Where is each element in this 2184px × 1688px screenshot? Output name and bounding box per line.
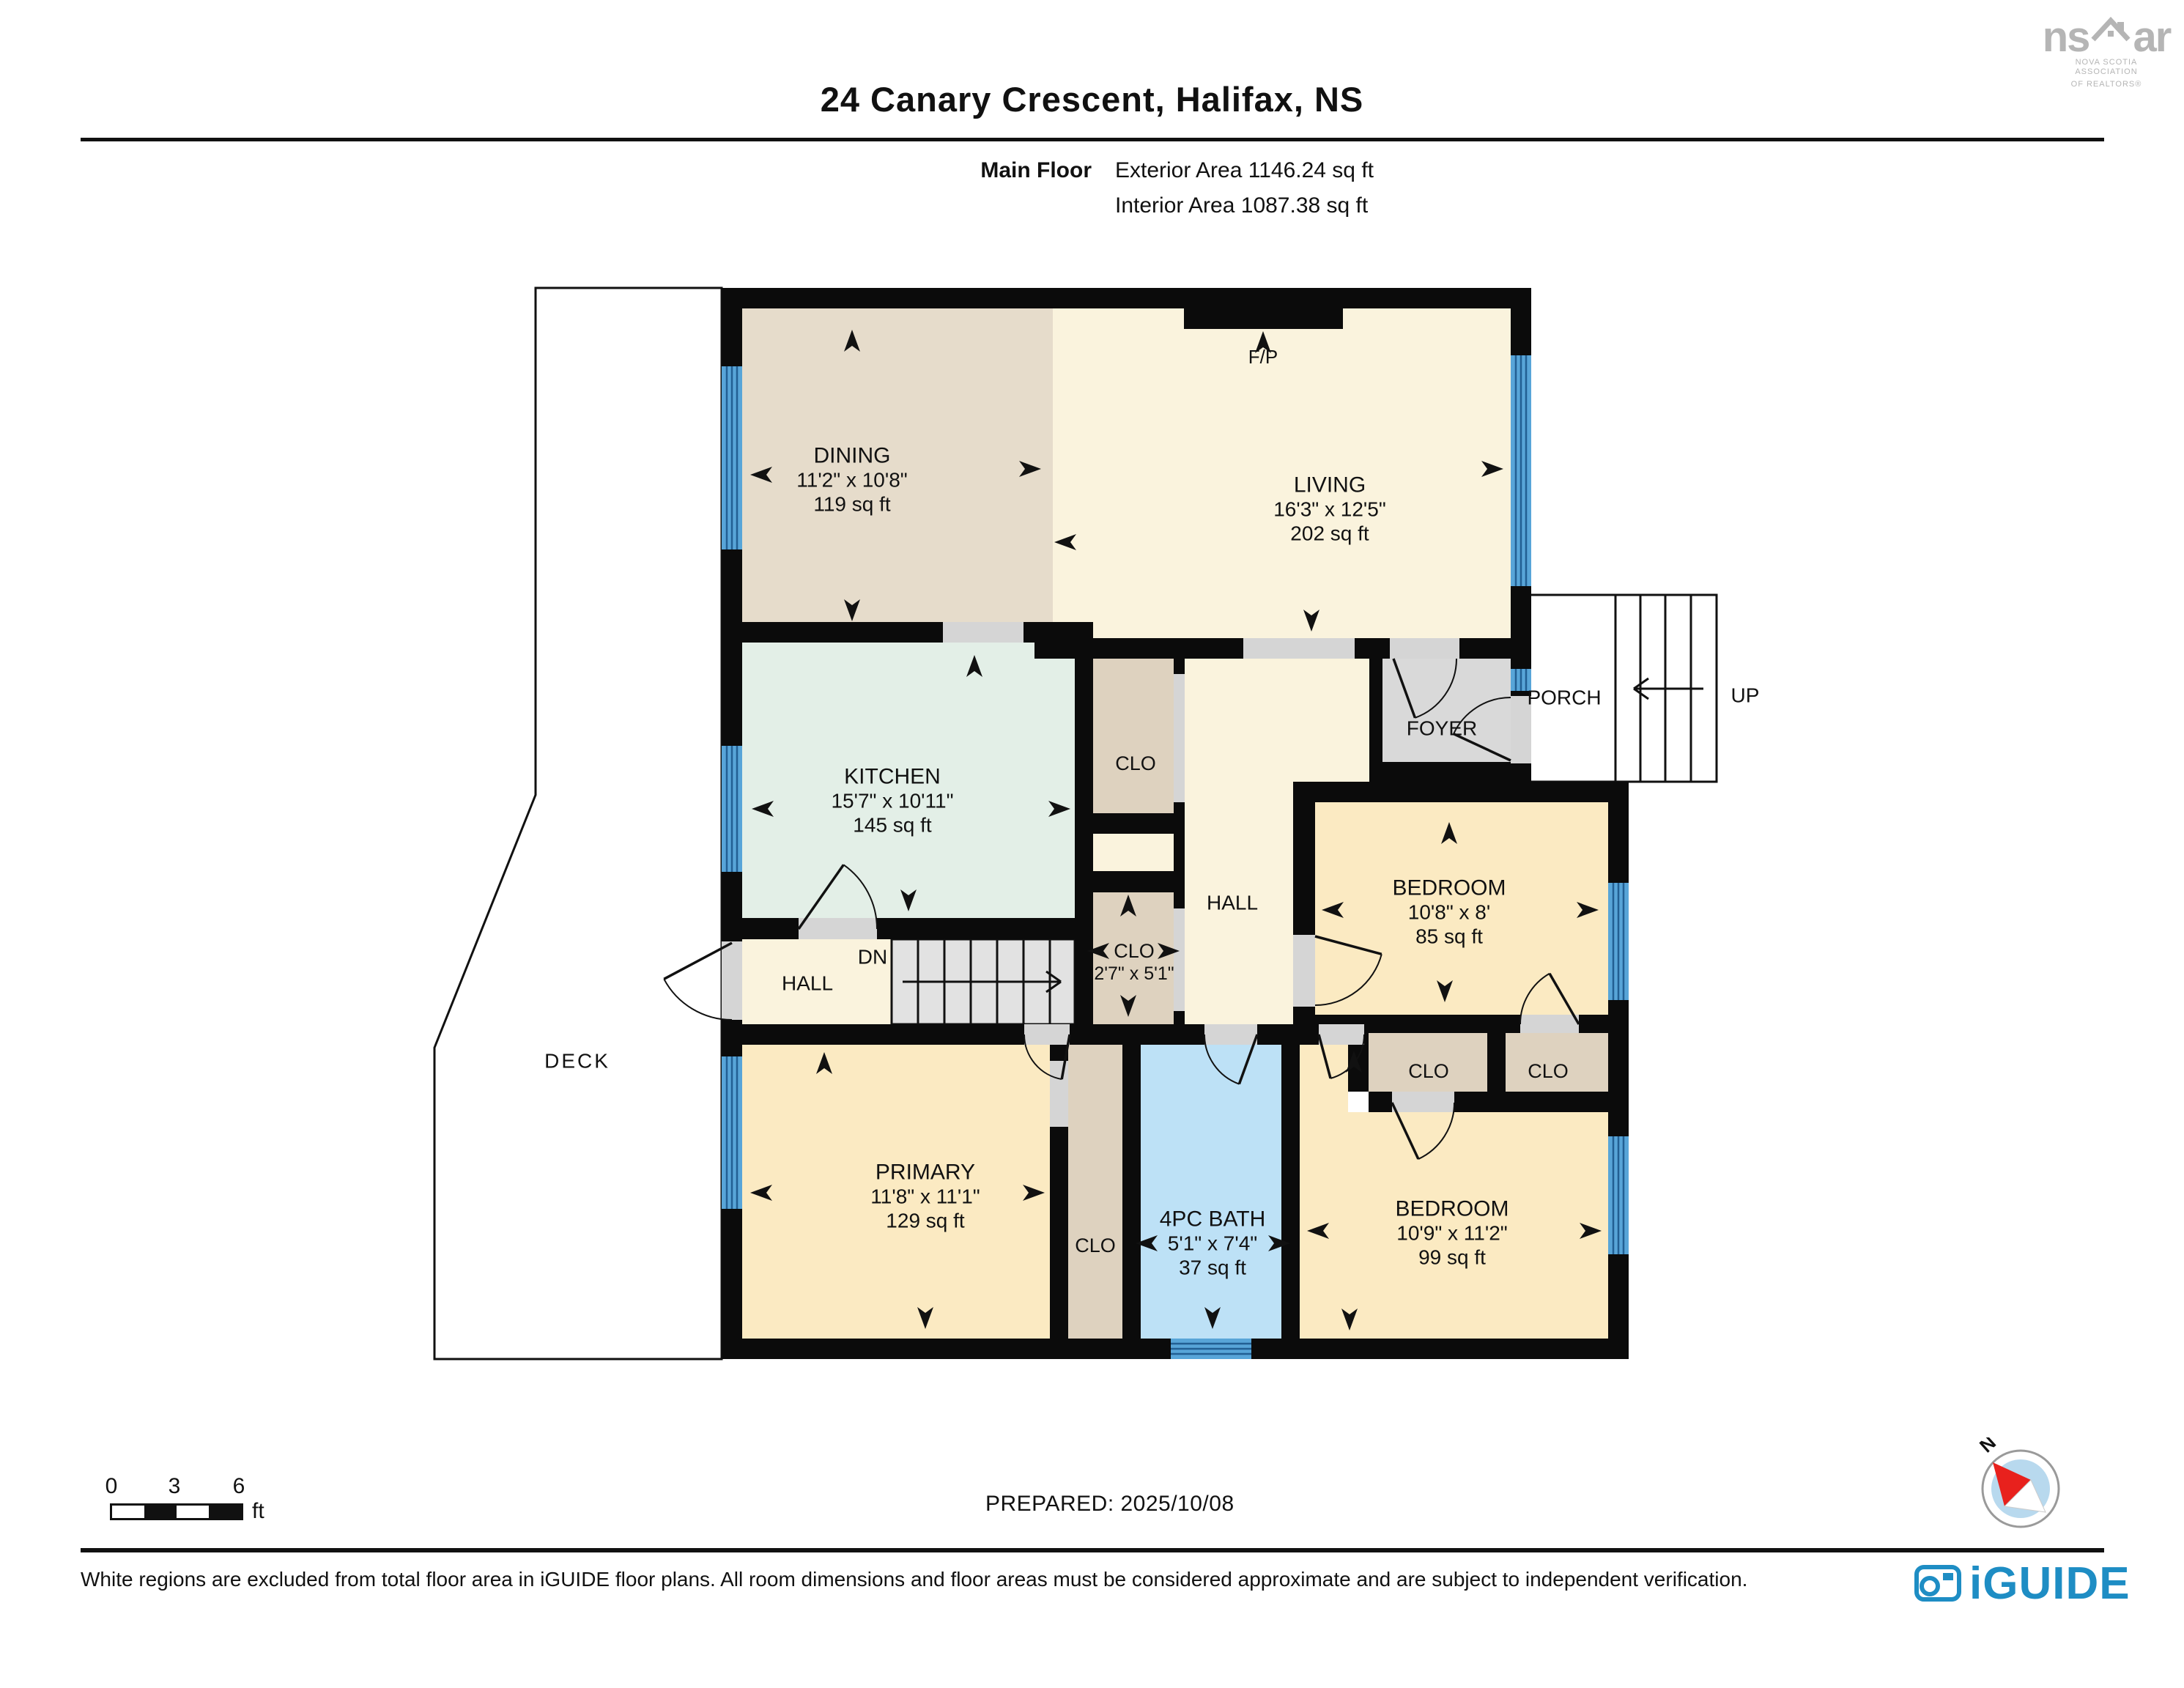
label-bedroom1: 10'8" x 8' — [1408, 901, 1490, 924]
iguide-logo: iGUIDE — [1914, 1558, 2131, 1610]
label-kitchen: KITCHEN — [844, 765, 941, 789]
prepared-date: PREPARED: 2025/10/08 — [985, 1492, 1234, 1517]
compass-icon: N — [1965, 1437, 2075, 1547]
wall — [1093, 871, 1174, 892]
door-opening — [943, 622, 1023, 643]
door-opening — [1520, 1015, 1579, 1033]
label-deck: DECK — [544, 1050, 610, 1073]
label-hall_lower: HALL — [782, 972, 833, 995]
door-opening — [722, 941, 742, 1020]
label-bath: 37 sq ft — [1179, 1256, 1246, 1279]
label-dining: 119 sq ft — [813, 493, 891, 516]
label-clo_upper: CLO — [1115, 752, 1156, 774]
footer-divider — [81, 1548, 2104, 1552]
label-bath: 5'1" x 7'4" — [1168, 1232, 1257, 1255]
label-primary: PRIMARY — [876, 1160, 975, 1185]
door-opening — [1174, 674, 1185, 802]
label-bedroom2: 10'9" x 11'2" — [1396, 1222, 1507, 1245]
label-living: 16'3" x 12'5" — [1273, 498, 1386, 521]
label-living: 202 sq ft — [1290, 522, 1369, 545]
room-living — [1053, 308, 1511, 638]
label-fp: F/P — [1248, 346, 1278, 368]
wall — [1093, 813, 1174, 834]
label-porch: PORCH — [1527, 686, 1601, 709]
label-living: LIVING — [1294, 473, 1366, 497]
wall — [1281, 1045, 1300, 1339]
fireplace — [1184, 308, 1343, 329]
door-opening — [1050, 1061, 1068, 1127]
label-bedroom1: BEDROOM — [1392, 876, 1506, 900]
door-opening — [1319, 1024, 1364, 1045]
scale-bar — [110, 1503, 243, 1520]
label-dn: DN — [858, 946, 887, 969]
closet-primary — [1068, 1045, 1122, 1339]
label-bedroom2: BEDROOM — [1395, 1197, 1509, 1221]
wall — [722, 288, 1531, 308]
scale-tick-0: 0 — [106, 1474, 118, 1499]
door-opening — [1390, 638, 1459, 659]
label-dining: 11'2" x 10'8" — [796, 469, 907, 492]
door-opening — [1392, 1092, 1454, 1112]
label-clo_strip: CLO — [1075, 1234, 1116, 1256]
door-opening — [1243, 638, 1355, 659]
label-up: UP — [1731, 684, 1760, 707]
wall — [1487, 1033, 1506, 1092]
label-primary: 11'8" x 11'1" — [870, 1185, 980, 1208]
wall — [1293, 782, 1629, 802]
label-clo_lower: 2'7" x 5'1" — [1094, 963, 1174, 984]
wall — [742, 918, 1075, 939]
door-opening — [1174, 908, 1185, 1011]
label-clo_b: CLO — [1528, 1060, 1569, 1082]
scale-tick-3: 3 — [169, 1474, 181, 1499]
deck-outline — [434, 288, 722, 1359]
scale-unit: ft — [252, 1499, 264, 1524]
label-kitchen: 145 sq ft — [853, 814, 932, 837]
room-dining — [742, 308, 1053, 622]
closet-upper — [1093, 659, 1174, 813]
iguide-camera-icon — [1914, 1561, 1962, 1606]
scale-tick-6: 6 — [233, 1474, 245, 1499]
label-dining: DINING — [814, 444, 891, 468]
label-bath: 4PC BATH — [1160, 1207, 1265, 1232]
label-hall_upper: HALL — [1207, 892, 1258, 914]
room-foyer — [1382, 659, 1511, 762]
wall — [1122, 1045, 1141, 1339]
wall — [1369, 762, 1511, 782]
label-bedroom2: 99 sq ft — [1418, 1246, 1486, 1269]
label-foyer: FOYER — [1407, 717, 1477, 740]
hall-sliver — [1093, 834, 1174, 871]
wall — [1293, 802, 1315, 1045]
label-primary: 129 sq ft — [886, 1210, 965, 1232]
door-opening — [1293, 935, 1315, 1007]
room-bath — [1141, 1045, 1281, 1339]
label-kitchen: 15'7" x 10'11" — [831, 790, 953, 812]
compass-north-label: N — [1975, 1437, 2000, 1456]
wall — [1075, 643, 1093, 1045]
iguide-wordmark: iGUIDE — [1969, 1558, 2131, 1610]
door-opening — [1024, 1024, 1070, 1045]
door-opening — [1204, 1024, 1257, 1045]
wall — [1608, 782, 1629, 1359]
label-clo_lower: CLO — [1114, 940, 1155, 962]
scale-ticks: 0 3 6 — [81, 1474, 271, 1499]
label-bedroom1: 85 sq ft — [1415, 925, 1483, 948]
door-opening — [799, 918, 877, 939]
wall — [1034, 622, 1053, 659]
label-clo_a: CLO — [1408, 1060, 1449, 1082]
floor-plan: DINING11'2" x 10'8"119 sq ftLIVING16'3" … — [0, 0, 2184, 1688]
disclaimer-text: White regions are excluded from total fl… — [81, 1568, 1839, 1591]
